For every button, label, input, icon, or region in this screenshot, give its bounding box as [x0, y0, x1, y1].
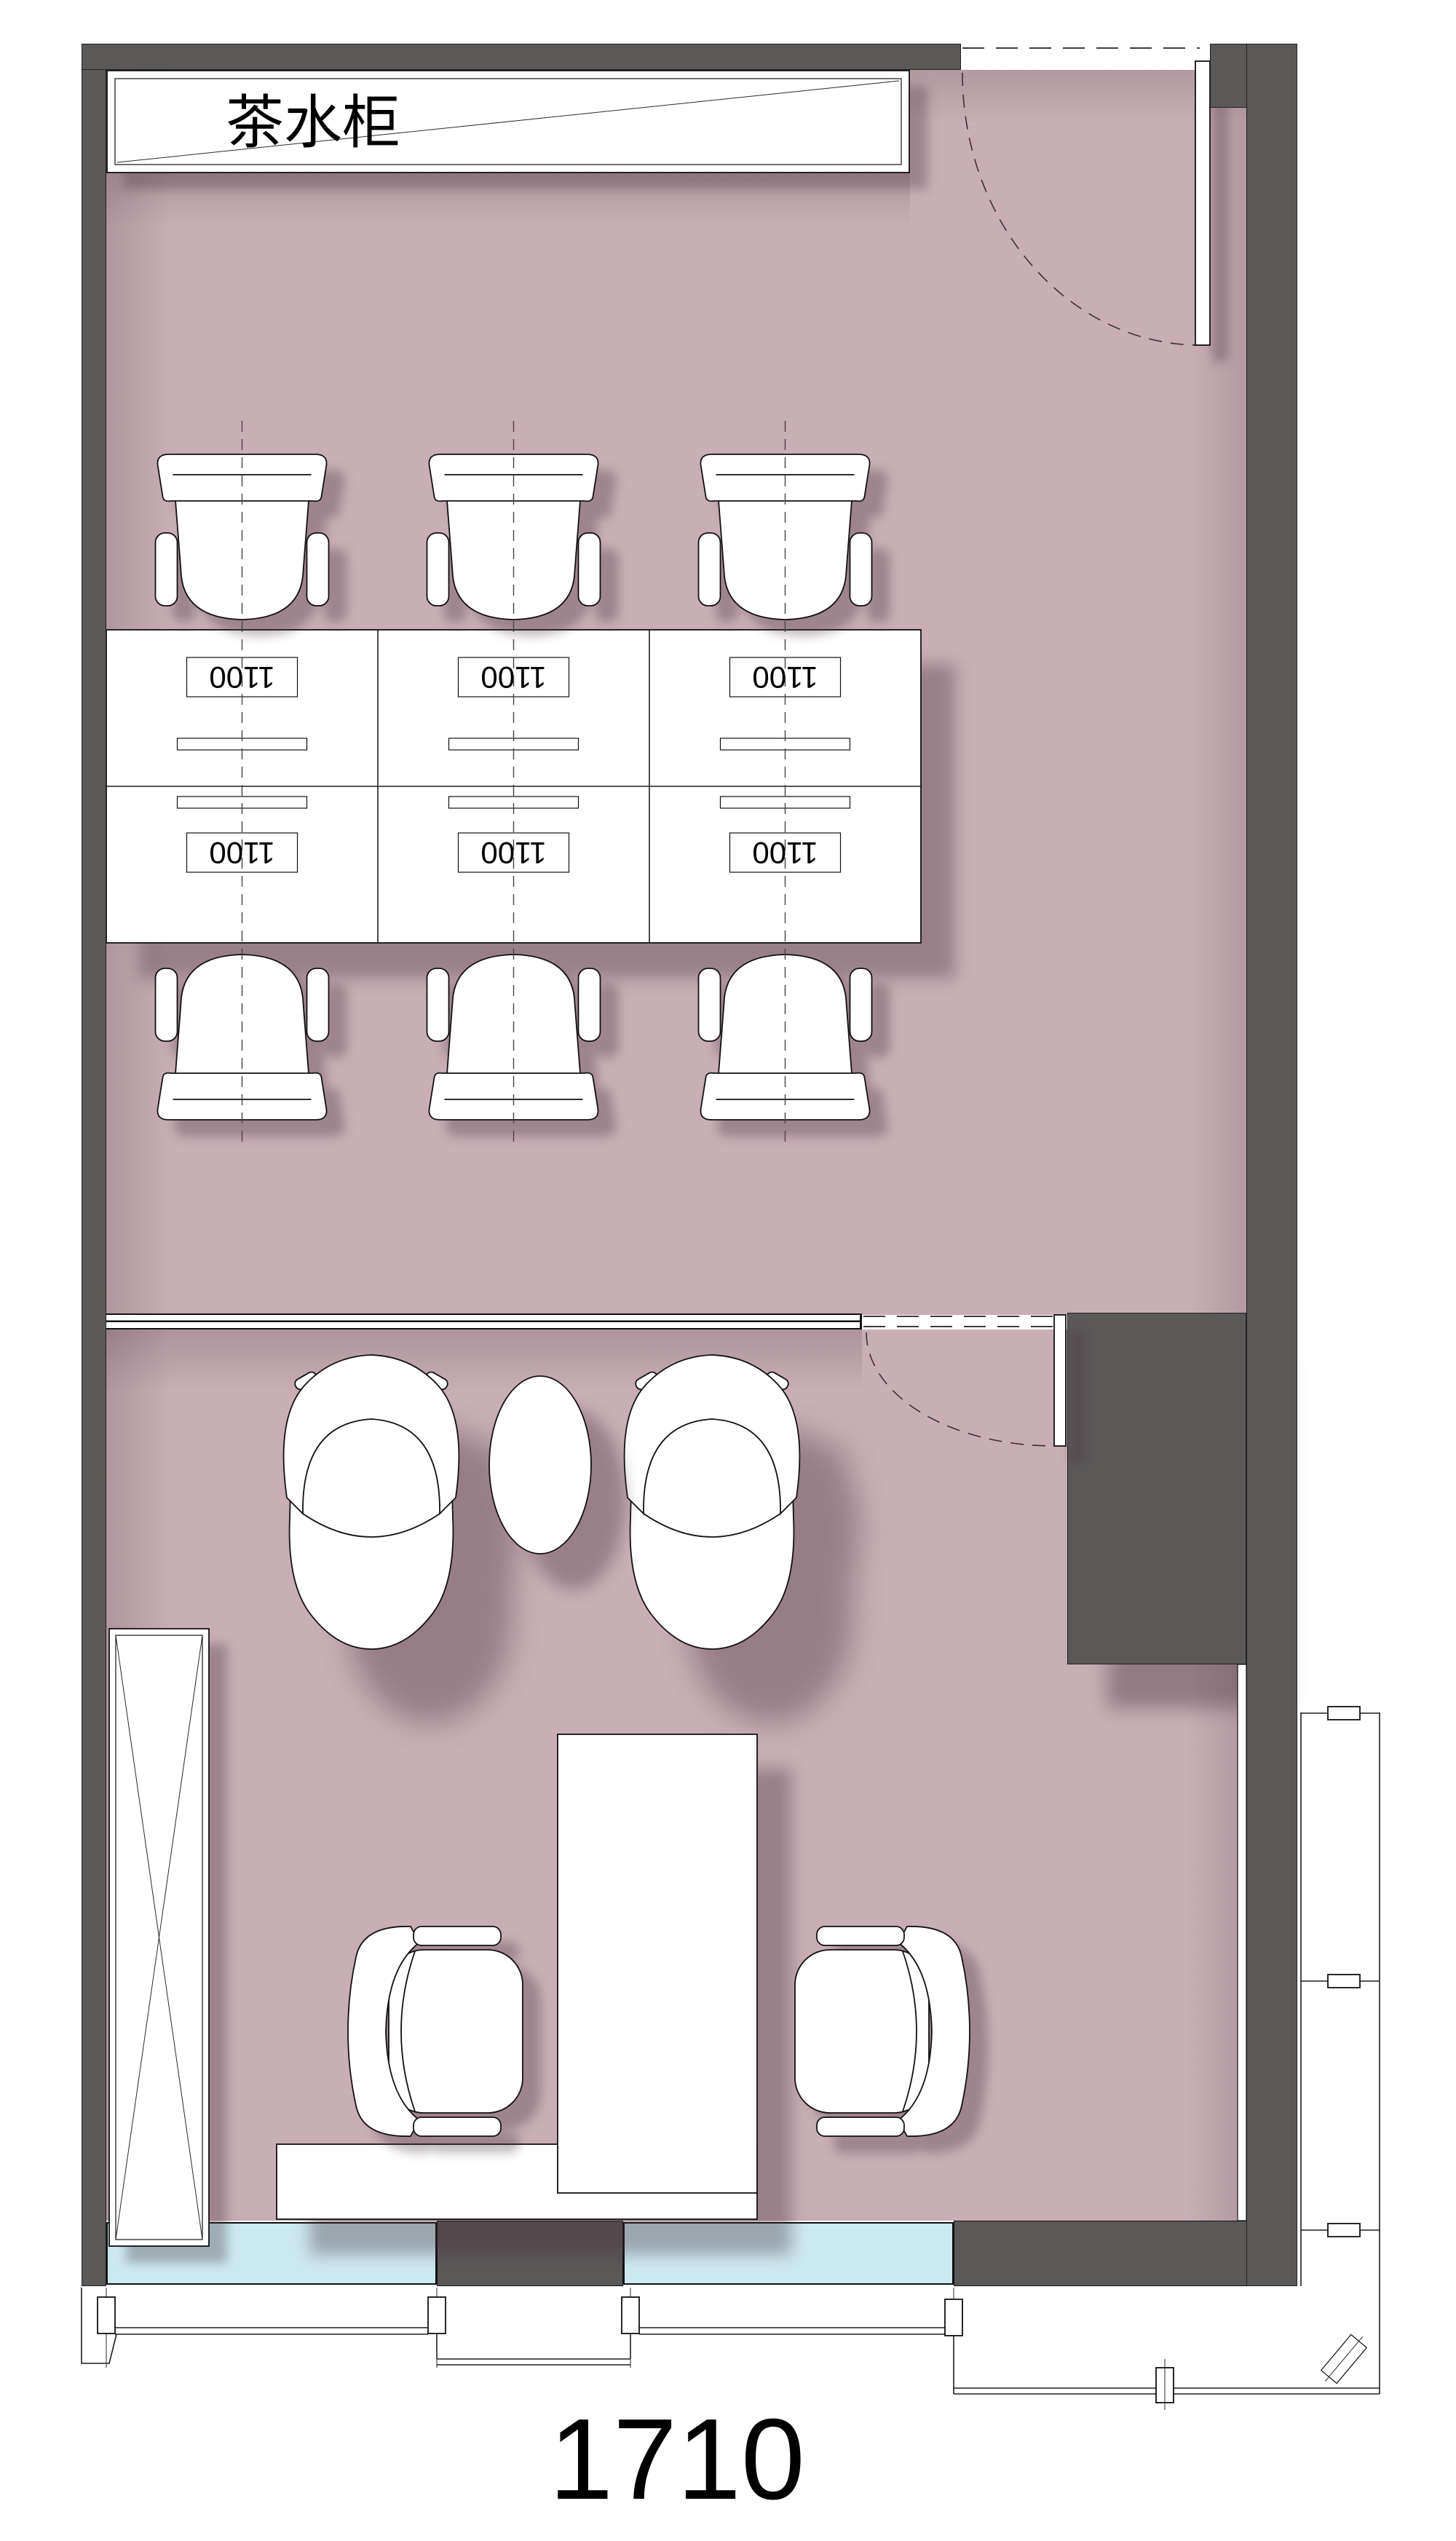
wall-right — [1246, 44, 1297, 2286]
room-number: 1710 — [549, 2395, 805, 2524]
glass-partition — [106, 1313, 862, 1329]
rail-tick — [1328, 2224, 1360, 2237]
rail-tick — [1328, 1975, 1360, 1988]
office-chair — [348, 1927, 523, 2136]
mullion-post — [622, 2297, 639, 2333]
vent-diamond — [1318, 2330, 1371, 2387]
wall-top — [82, 44, 961, 70]
office-chair — [795, 1927, 970, 2136]
lounge-chair — [284, 1355, 459, 1649]
glass-strip-right — [1238, 1664, 1246, 2221]
entry-door-top — [962, 48, 1210, 345]
door-mid-right — [863, 1315, 1066, 1446]
mullion-post — [98, 2297, 115, 2333]
desk-top — [558, 1734, 757, 2193]
storage-cabinet-x — [109, 1629, 209, 2246]
rail-tick — [1328, 1707, 1360, 1720]
mullion-post — [428, 2297, 446, 2333]
door-leaf — [1054, 1315, 1066, 1446]
tea-cabinet-label: 茶水柜 — [226, 90, 400, 155]
door-leaf — [1195, 61, 1210, 345]
door-swing-arc — [962, 73, 1198, 345]
side-table-oval — [489, 1376, 591, 1554]
door-swing-arc — [866, 1332, 1054, 1446]
wall-left — [82, 44, 106, 2286]
mullion-post — [945, 2299, 962, 2336]
floor-plan: 茶水柜 1100 1100 1100 1100 — [0, 0, 1456, 2541]
plan-linework: 茶水柜 1100 1100 1100 1100 — [0, 0, 1456, 2541]
lounge-chair — [625, 1355, 800, 1649]
